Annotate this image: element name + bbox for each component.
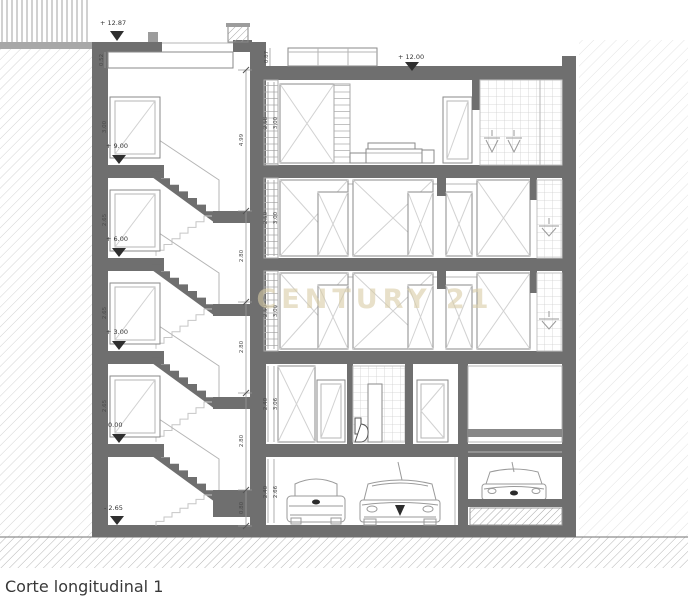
roof-skylight-box	[288, 48, 377, 66]
svg-text:2.80: 2.80	[239, 434, 245, 447]
hanging-wall-stub	[530, 178, 537, 200]
glazed-panel	[278, 366, 315, 442]
garage	[287, 452, 562, 525]
svg-text:2.40: 2.40	[263, 485, 269, 498]
svg-text:+ 9.00: + 9.00	[106, 142, 128, 150]
slab-level3	[250, 165, 576, 178]
svg-text:2.58: 2.58	[263, 116, 269, 129]
svg-text:4.99: 4.99	[239, 133, 245, 146]
foundation-slab	[92, 525, 576, 537]
dimension-tower-parapet: 0.52	[99, 52, 105, 68]
svg-text:0.00: 0.00	[108, 421, 122, 429]
wardrobe	[280, 84, 350, 163]
svg-text:+ 3.00: + 3.00	[106, 328, 128, 336]
garage-lintel-band	[467, 429, 562, 437]
return-flight-4	[156, 495, 212, 526]
svg-text:0.87: 0.87	[264, 50, 270, 63]
svg-text:2.40: 2.40	[263, 397, 269, 410]
neighbor-cap-band	[0, 42, 93, 49]
century21-watermark: CENTURY 21	[256, 284, 493, 315]
level-marker-tower-roof: + 12.87	[100, 19, 126, 41]
svg-text:+ 12.00: + 12.00	[398, 53, 424, 61]
terrain-band	[0, 537, 688, 568]
car-front-view-small	[482, 462, 546, 500]
section-canvas: + 12.87 + 12.00 + 9.00 + 6.00 + 3.00 0.0…	[0, 0, 688, 604]
neighbor-roof-hatch	[0, 0, 90, 42]
mid-landing-3	[213, 397, 250, 409]
svg-text:3.00: 3.00	[273, 211, 279, 224]
svg-text:2.66: 2.66	[273, 485, 279, 498]
chimney	[226, 23, 250, 42]
left-exterior-wall	[92, 42, 108, 537]
door	[318, 192, 348, 256]
svg-text:2.50: 2.50	[263, 211, 269, 224]
glazed-panel	[477, 180, 530, 256]
svg-text:2.65: 2.65	[102, 399, 108, 412]
mid-landing-2	[213, 304, 250, 316]
hanging-wall-stub	[437, 178, 446, 196]
door	[417, 380, 448, 442]
bedroom-door	[443, 97, 472, 163]
wc-wall	[405, 364, 413, 444]
svg-text:2.80: 2.80	[239, 340, 245, 353]
svg-text:3.06: 3.06	[273, 397, 279, 410]
neighbor-building-hatch	[0, 0, 93, 537]
floor-2	[264, 178, 562, 258]
door	[317, 380, 345, 442]
svg-text:+ 6.00: + 6.00	[106, 235, 128, 243]
staircase-tower	[108, 97, 250, 526]
car-rear-view	[287, 479, 345, 524]
car-lift-compartment	[467, 452, 562, 525]
garage-entry-area	[467, 366, 562, 442]
svg-text:0.80: 0.80	[239, 501, 245, 514]
tower-parapet-face	[108, 52, 233, 68]
svg-text:+ 12.87: + 12.87	[100, 19, 126, 27]
slab-level1	[250, 351, 576, 364]
bed	[350, 143, 434, 163]
svg-text:- 2.65: - 2.65	[104, 504, 123, 512]
svg-text:2.65: 2.65	[102, 213, 108, 226]
door	[446, 192, 472, 256]
slab-level2	[250, 258, 576, 271]
bath-partition-stub	[472, 80, 480, 110]
svg-text:2.65: 2.65	[102, 306, 108, 319]
tower-roof-slab	[92, 42, 162, 52]
wc-room	[353, 366, 405, 442]
right-ground-hatch	[579, 40, 688, 537]
hanging-wall-stub	[530, 271, 537, 293]
slab-ground	[250, 444, 576, 457]
roof-vent-block	[148, 32, 158, 42]
wc-wall	[347, 364, 353, 444]
left-ground-hatch	[0, 49, 92, 537]
top-floor	[264, 80, 562, 165]
svg-text:3.00: 3.00	[273, 116, 279, 129]
dimension-chain-stair: 4.99 2.80 2.80 2.80 0.80	[238, 67, 252, 529]
svg-text:3.00: 3.00	[102, 120, 108, 133]
garage-separator-wall	[458, 364, 468, 537]
svg-text:2.80: 2.80	[239, 249, 245, 262]
car-front-view	[360, 462, 440, 525]
platform-slab	[467, 499, 562, 507]
architectural-section-drawing: + 12.87 + 12.00 + 9.00 + 6.00 + 3.00 0.0…	[0, 0, 688, 604]
door	[408, 192, 433, 256]
drawing-caption: Corte longitudinal 1	[5, 577, 163, 596]
svg-text:0.52: 0.52	[99, 54, 105, 66]
platform-hatch-block	[470, 508, 562, 525]
right-exterior-wall	[562, 56, 576, 537]
